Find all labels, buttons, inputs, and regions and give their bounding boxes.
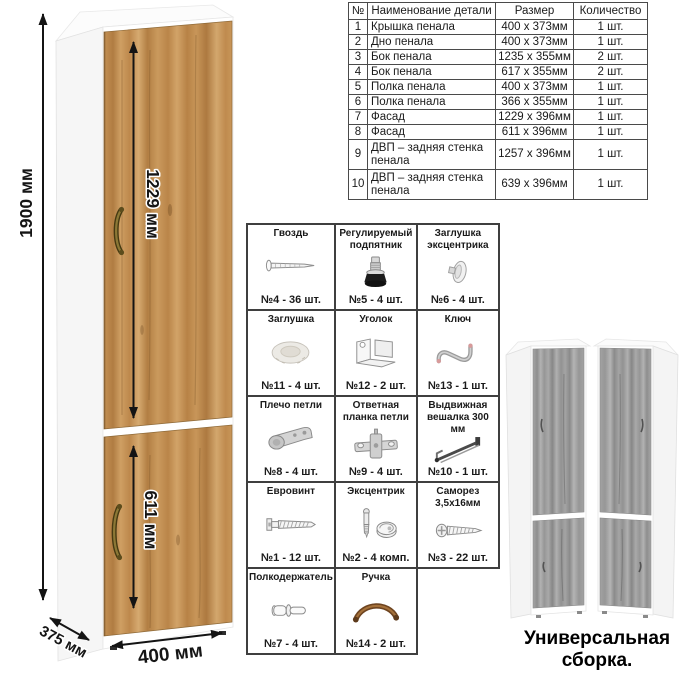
table-cell: 5: [349, 80, 368, 95]
hardware-grid: Гвоздь№4 - 36 шт.Регулируемый подпятник№…: [246, 223, 500, 655]
hardware-grid-body: Гвоздь№4 - 36 шт.Регулируемый подпятник№…: [247, 224, 499, 654]
table-cell: 1 шт.: [574, 170, 648, 200]
cam-cap-icon: [418, 252, 498, 294]
lower-door-dim-label: 611 мм: [141, 491, 161, 550]
key-icon: [418, 326, 498, 380]
table-header-row: № Наименование детали Размер Количество: [349, 3, 648, 20]
hinge-plate-icon: [336, 424, 416, 466]
hardware-item-title: Гвоздь: [248, 225, 334, 240]
cabinet-diagram: 1900 мм 1229 мм 611 мм 400 мм 375 мм: [0, 0, 245, 683]
table-row: 3Бок пенала1235 х 355мм2 шт.: [349, 50, 648, 65]
table-cell: 6: [349, 95, 368, 110]
hardware-item-count: №10 - 1 шт.: [418, 466, 498, 481]
hardware-item-title: Плечо петли: [248, 397, 334, 412]
hardware-item-title: Эксцентрик: [336, 483, 416, 498]
table-cell: 1: [349, 20, 368, 35]
col-header-size: Размер: [496, 3, 574, 20]
hardware-item: Плечо петли№8 - 4 шт.: [248, 397, 334, 481]
wood-knot: [168, 204, 172, 216]
table-row: 1Крышка пенала400 х 373мм1 шт.: [349, 20, 648, 35]
lower-door: [104, 425, 232, 636]
table-cell: 1235 х 355мм: [496, 50, 574, 65]
hardware-item: Уголок№12 - 2 шт.: [336, 311, 416, 395]
col-header-qty: Количество: [574, 3, 648, 20]
table-cell: 3: [349, 50, 368, 65]
table-cell: 400 х 373мм: [496, 35, 574, 50]
hardware-cell: Плечо петли№8 - 4 шт.: [247, 396, 335, 482]
table-cell: 10: [349, 170, 368, 200]
hardware-cell: Эксцентрик№2 - 4 комп.: [335, 482, 417, 568]
table-cell: Фасад: [368, 125, 496, 140]
table-cell: 1 шт.: [574, 110, 648, 125]
gray-cabinet-view-mirrored: [594, 339, 678, 618]
table-row: 10ДВП – задняя стенка пенала639 х 396мм1…: [349, 170, 648, 200]
height-dim-label: 1900 мм: [16, 168, 36, 238]
upper-door: [104, 21, 232, 429]
table-cell: 7: [349, 110, 368, 125]
table-cell: 1 шт.: [574, 125, 648, 140]
table-cell: 1 шт.: [574, 140, 648, 170]
nail-icon: [248, 240, 334, 294]
hardware-item: Выдвижная вешалка 300 мм№10 - 1 шт.: [418, 397, 498, 481]
hardware-item-count: №8 - 4 шт.: [248, 466, 334, 481]
table-cell: 8: [349, 125, 368, 140]
col-header-num: №: [349, 3, 368, 20]
table-cell: 1 шт.: [574, 80, 648, 95]
hardware-cell: Саморез 3,5х16мм№3 - 22 шт.: [417, 482, 499, 568]
hardware-row: Заглушка№11 - 4 шт.Уголок№12 - 2 шт.Ключ…: [247, 310, 499, 396]
hardware-item: Регулируемый подпятник№5 - 4 шт.: [336, 225, 416, 309]
table-cell: Дно пенала: [368, 35, 496, 50]
hardware-item-count: №12 - 2 шт.: [336, 380, 416, 395]
table-cell: Бок пенала: [368, 65, 496, 80]
table-cell: Крышка пенала: [368, 20, 496, 35]
table-cell: 639 х 396мм: [496, 170, 574, 200]
hardware-item-title: Заглушка: [248, 311, 334, 326]
hardware-item: Ответная планка петли№9 - 4 шт.: [336, 397, 416, 481]
gray-cabinet-view: [506, 339, 590, 618]
hardware-item-count: №14 - 2 шт.: [336, 638, 416, 653]
table-cell: 9: [349, 140, 368, 170]
hardware-cell: Ответная планка петли№9 - 4 шт.: [335, 396, 417, 482]
hardware-item: Саморез 3,5х16мм№3 - 22 шт.: [418, 483, 498, 567]
hardware-item: Заглушка эксцентрика№6 - 4 шт.: [418, 225, 498, 309]
table-row: 4Бок пенала617 х 355мм2 шт.: [349, 65, 648, 80]
hardware-item-count: №6 - 4 шт.: [418, 294, 498, 309]
width-dim-label: 400 мм: [137, 640, 204, 668]
table-row: 9ДВП – задняя стенка пенала1257 х 396мм1…: [349, 140, 648, 170]
wood-knot: [176, 535, 180, 546]
cabinet-illustration: [56, 5, 233, 661]
hardware-item-count: №5 - 4 шт.: [336, 294, 416, 309]
hardware-row: Евровинт№1 - 12 шт.Эксцентрик№2 - 4 комп…: [247, 482, 499, 568]
hardware-item-title: Ручка: [336, 569, 416, 584]
table-cell: Бок пенала: [368, 50, 496, 65]
table-cell: 1229 х 396мм: [496, 110, 574, 125]
table-cell: 4: [349, 65, 368, 80]
hardware-item-count: №9 - 4 шт.: [336, 466, 416, 481]
hardware-item: Евровинт№1 - 12 шт.: [248, 483, 334, 567]
assembled-views: [494, 334, 694, 626]
hardware-item-title: Евровинт: [248, 483, 334, 498]
hardware-item-count: №1 - 12 шт.: [248, 552, 334, 567]
hardware-item: Полкодержатель№7 - 4 шт.: [248, 569, 334, 653]
hardware-row: Гвоздь№4 - 36 шт.Регулируемый подпятник№…: [247, 224, 499, 310]
table-cell: Полка пенала: [368, 80, 496, 95]
table-cell: 611 х 396мм: [496, 125, 574, 140]
hardware-row: Полкодержатель№7 - 4 шт.Ручка№14 - 2 шт.: [247, 568, 499, 654]
table-cell: 1257 х 396мм: [496, 140, 574, 170]
hardware-cell: Гвоздь№4 - 36 шт.: [247, 224, 335, 310]
hardware-item-title: Саморез 3,5х16мм: [418, 483, 498, 510]
table-row: 2Дно пенала400 х 373мм1 шт.: [349, 35, 648, 50]
wood-knot: [140, 325, 144, 335]
hardware-cell: Уголок№12 - 2 шт.: [335, 310, 417, 396]
table-cell: ДВП – задняя стенка пенала: [368, 140, 496, 170]
pullout-hanger-icon: [418, 435, 498, 466]
hinge-arm-icon: [248, 412, 334, 466]
table-cell: 1 шт.: [574, 20, 648, 35]
hardware-cell: Ключ№13 - 1 шт.: [417, 310, 499, 396]
euro-screw-icon: [248, 498, 334, 552]
table-cell: 2: [349, 35, 368, 50]
cap-icon: [248, 326, 334, 380]
handle-icon: [336, 584, 416, 638]
table-cell: 400 х 373мм: [496, 80, 574, 95]
col-header-name: Наименование детали: [368, 3, 496, 20]
corner-bracket-icon: [336, 326, 416, 380]
cam-lock-icon: [336, 498, 416, 552]
shelf-pin-icon: [248, 584, 334, 638]
hardware-item-count: №7 - 4 шт.: [248, 638, 334, 653]
table-cell: 1 шт.: [574, 95, 648, 110]
parts-table: № Наименование детали Размер Количество …: [348, 2, 648, 200]
table-row: 6Полка пенала366 х 355мм1 шт.: [349, 95, 648, 110]
hardware-item-count: №4 - 36 шт.: [248, 294, 334, 309]
screw-icon: [418, 510, 498, 552]
hardware-item-title: Регулируемый подпятник: [336, 225, 416, 252]
table-cell: 366 х 355мм: [496, 95, 574, 110]
table-cell: 1 шт.: [574, 35, 648, 50]
parts-table-body: 1Крышка пенала400 х 373мм1 шт.2Дно пенал…: [349, 20, 648, 200]
hardware-item-count: №3 - 22 шт.: [418, 552, 498, 567]
hardware-cell: Полкодержатель№7 - 4 шт.: [247, 568, 335, 654]
hardware-item-title: Полкодержатель: [248, 569, 334, 584]
hardware-row: Плечо петли№8 - 4 шт.Ответная планка пет…: [247, 396, 499, 482]
table-cell: ДВП – задняя стенка пенала: [368, 170, 496, 200]
hardware-item-title: Выдвижная вешалка 300 мм: [418, 397, 498, 435]
hardware-cell: Ручка№14 - 2 шт.: [335, 568, 417, 654]
hardware-cell: Выдвижная вешалка 300 мм№10 - 1 шт.: [417, 396, 499, 482]
hardware-item-count: №2 - 4 комп.: [336, 552, 416, 567]
hardware-item-title: Заглушка эксцентрика: [418, 225, 498, 252]
hardware-item: Гвоздь№4 - 36 шт.: [248, 225, 334, 309]
table-cell: 617 х 355мм: [496, 65, 574, 80]
hardware-item: Ручка№14 - 2 шт.: [336, 569, 416, 653]
hardware-item: Эксцентрик№2 - 4 комп.: [336, 483, 416, 567]
table-cell: 400 х 373мм: [496, 20, 574, 35]
table-cell: Полка пенала: [368, 95, 496, 110]
hardware-item: Заглушка№11 - 4 шт.: [248, 311, 334, 395]
hardware-item-title: Ответная планка петли: [336, 397, 416, 424]
hardware-cell: Регулируемый подпятник№5 - 4 шт.: [335, 224, 417, 310]
hardware-item-title: Уголок: [336, 311, 416, 326]
assembly-sheet: 1900 мм 1229 мм 611 мм 400 мм 375 мм № Н…: [0, 0, 700, 683]
empty-cell: [417, 568, 499, 654]
hardware-cell: Заглушка эксцентрика№6 - 4 шт.: [417, 224, 499, 310]
table-cell: 2 шт.: [574, 50, 648, 65]
table-cell: Фасад: [368, 110, 496, 125]
hardware-cell: Заглушка№11 - 4 шт.: [247, 310, 335, 396]
hardware-item: Ключ№13 - 1 шт.: [418, 311, 498, 395]
assembly-caption: Универсальная сборка.: [490, 628, 700, 672]
hardware-item-count: №13 - 1 шт.: [418, 380, 498, 395]
table-row: 8Фасад611 х 396мм1 шт.: [349, 125, 648, 140]
table-row: 5Полка пенала400 х 373мм1 шт.: [349, 80, 648, 95]
hardware-item-title: Ключ: [418, 311, 498, 326]
table-row: 7Фасад1229 х 396мм1 шт.: [349, 110, 648, 125]
hardware-item-count: №11 - 4 шт.: [248, 380, 334, 395]
adjustable-foot-icon: [336, 252, 416, 294]
upper-door-dim-label: 1229 мм: [143, 169, 163, 239]
cabinet-side-panel: [56, 27, 103, 661]
hardware-cell: Евровинт№1 - 12 шт.: [247, 482, 335, 568]
table-cell: 2 шт.: [574, 65, 648, 80]
